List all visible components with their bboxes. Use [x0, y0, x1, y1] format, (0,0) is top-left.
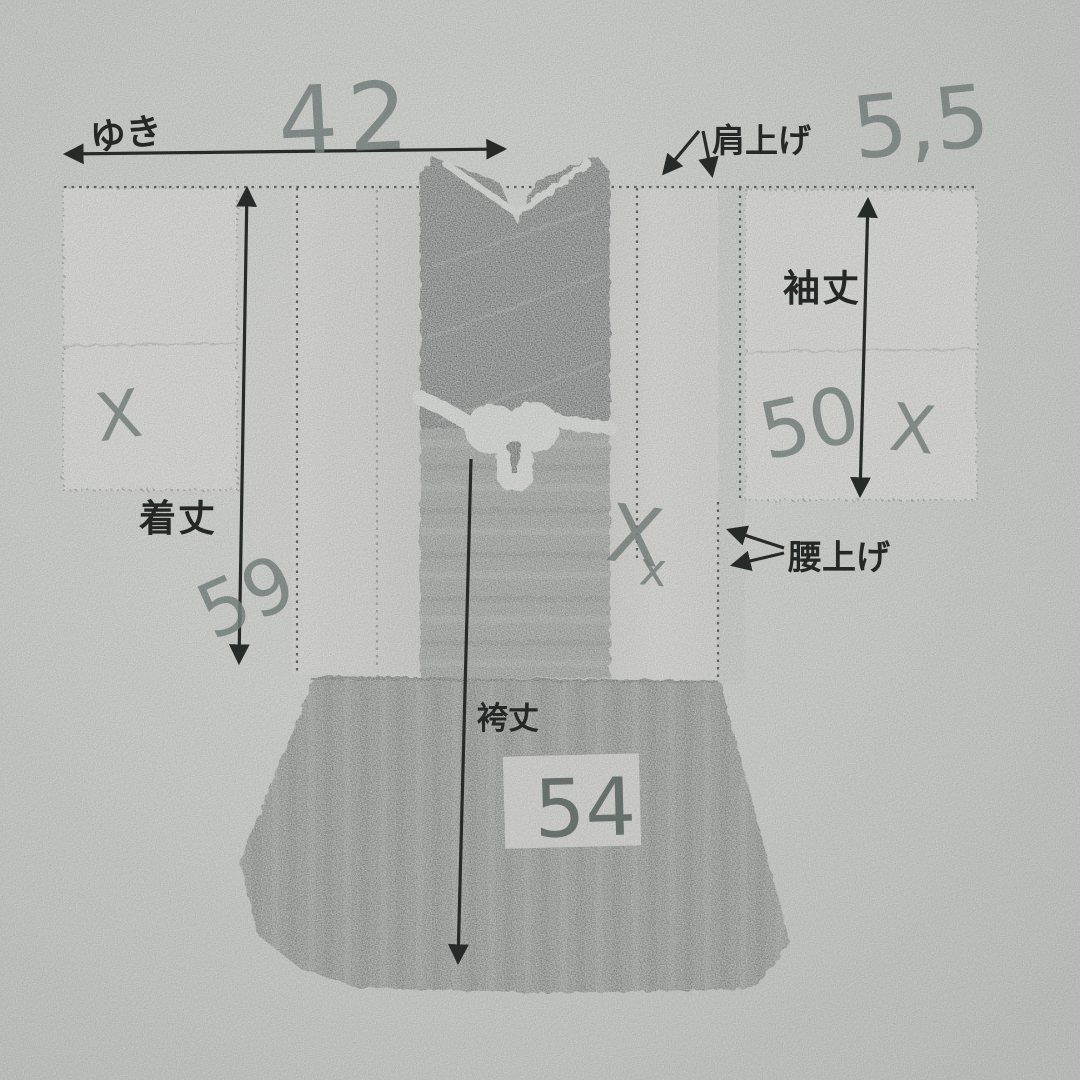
kimono-measurement-photo: 54 ゆき 肩上げ 袖丈 着丈 腰上げ 袴丈 42 5,5 50 59 X X … [0, 0, 1080, 1080]
photo-grain-overlay [0, 0, 1080, 1080]
measurement-diagram: 54 ゆき 肩上げ 袖丈 着丈 腰上げ 袴丈 42 5,5 50 59 X X … [0, 0, 1080, 1080]
